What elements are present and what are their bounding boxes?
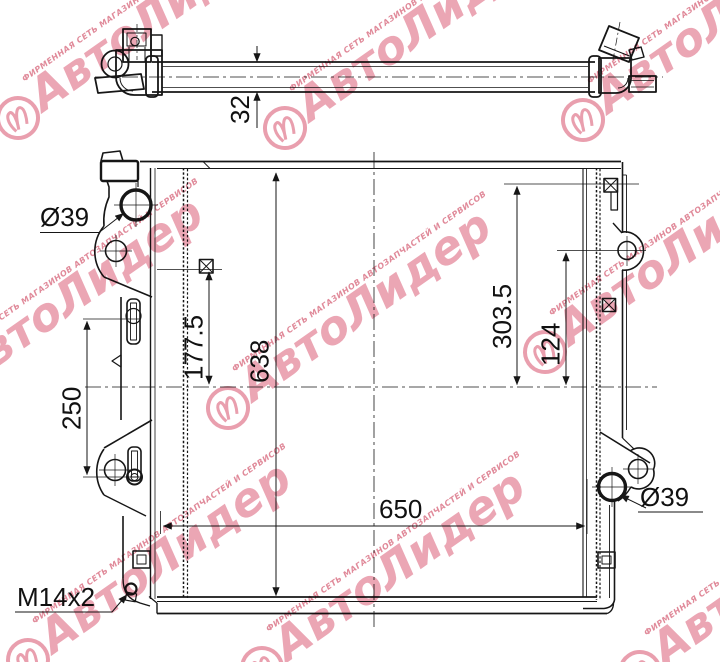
dimension-top-thickness: 32 [225, 46, 257, 128]
lower-left-pin [127, 447, 142, 485]
watermark: ФИРМЕННАЯ СЕТЬ МАГАЗИНОВ АВТОЗАПЧАСТЕЙ И… [249, 0, 571, 157]
watermark: ФИРМЕННАЯ СЕТЬ МАГАЗИНОВ АВТОЗАПЧАСТЕЙ И… [0, 175, 226, 424]
svg-text:АвтоЛидер: АвтоЛидер [260, 458, 535, 662]
watermark: ФИРМЕННАЯ СЕТЬ МАГАЗИНОВ АВТОЗАПЧАСТЕЙ И… [547, 0, 720, 149]
dim-303-5-label: 303.5 [487, 284, 517, 349]
dimension-outlet-diameter: Ø39 [621, 482, 704, 512]
drawing-canvas: 32 [0, 0, 720, 662]
svg-text:АвтоЛидер: АвтоЛидер [26, 450, 301, 662]
dimension-177-5: 177.5 [157, 270, 222, 385]
dim-250-label: 250 [57, 387, 87, 430]
right-top-clip [604, 179, 618, 211]
filler-cap [101, 161, 138, 181]
right-tank [583, 162, 655, 609]
dim-inlet-diameter-label: Ø39 [40, 202, 89, 232]
svg-text:АвтоЛидер: АвтоЛидер [226, 198, 501, 413]
dimension-inlet-diameter: Ø39 [40, 202, 124, 233]
svg-text:АвтоЛидер: АвтоЛидер [543, 142, 720, 357]
upper-left-pin [126, 299, 141, 344]
left-clip-bracket [200, 260, 214, 274]
radiator-technical-drawing: 32 [0, 0, 720, 662]
dim-32-label: 32 [225, 95, 255, 124]
svg-text:АвтоЛидер: АвтоЛидер [581, 0, 720, 125]
dim-177-5-label: 177.5 [179, 315, 209, 380]
watermark-layer: ФИРМЕННАЯ СЕТЬ МАГАЗИНОВ АВТОЗАПЧАСТЕЙ И… [0, 0, 720, 662]
dim-outlet-diameter-label: Ø39 [640, 482, 689, 512]
watermark: ФИРМЕННАЯ СЕТЬ МАГАЗИНОВ АВТОЗАПЧАСТЕЙ И… [192, 188, 514, 437]
watermark: ФИРМЕННАЯ СЕТЬ МАГАЗИНОВ АВТОЗАПЧАСТЕЙ И… [0, 0, 304, 147]
